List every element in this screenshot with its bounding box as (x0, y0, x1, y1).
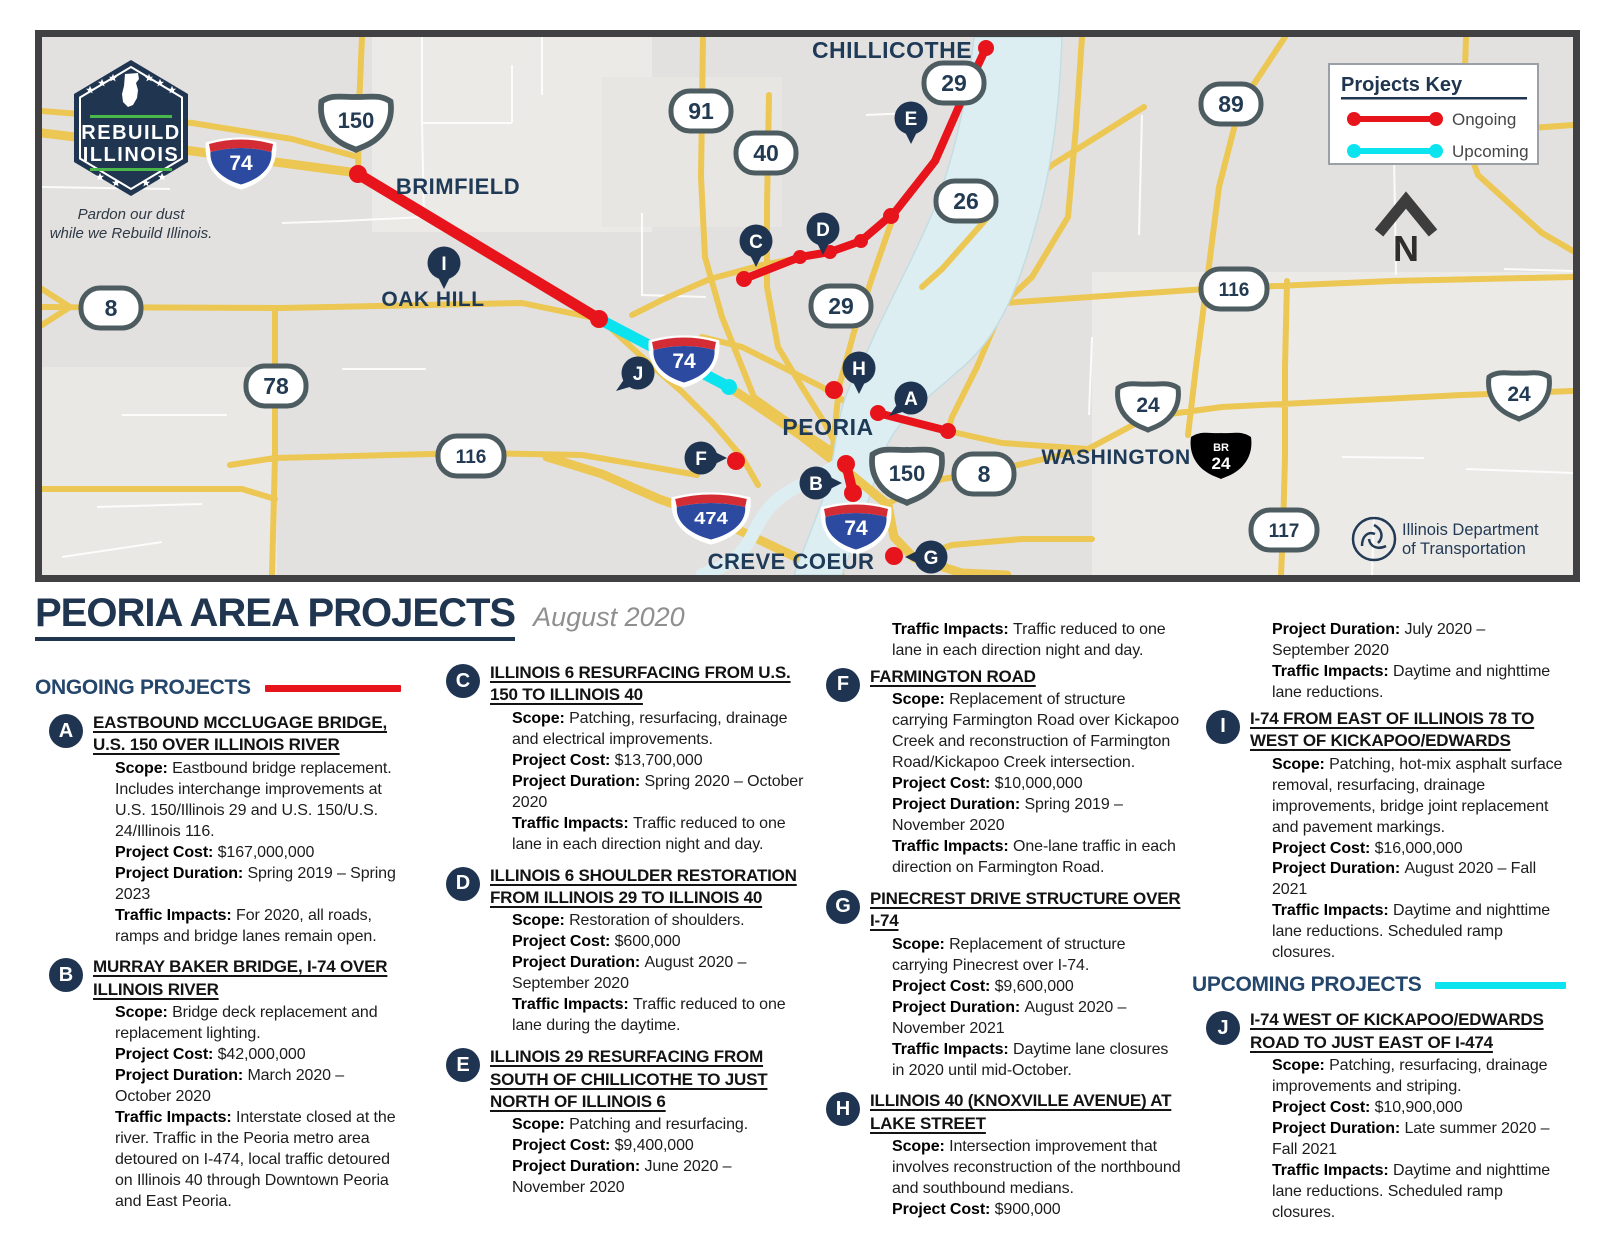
project-detail-scope: Scope: Eastbound bridge replacement. Inc… (115, 759, 401, 843)
svg-text:REBUILD: REBUILD (81, 122, 180, 144)
shield-il-116-west: 116 (438, 436, 504, 476)
svg-text:G: G (924, 548, 939, 569)
ongoing-dot-h (825, 381, 843, 399)
svg-text:I: I (441, 254, 446, 275)
rebuild-illinois-logo: REBUILD ILLINOIS Pardon our dust while w… (50, 60, 213, 242)
project-detail-cost: Project Cost: $16,000,000 (1272, 839, 1566, 860)
page-title: PEORIA AREA PROJECTS (35, 592, 515, 641)
projects-column-1: ONGOING PROJECTSAEASTBOUND MCCLUGAGE BRI… (35, 676, 401, 1222)
project-detail-impacts: Traffic Impacts: Daytime lane closures i… (892, 1040, 1184, 1082)
map-canvas: 8 78 91 40 29 26 29 8 89 116 116 117 150… (42, 37, 1573, 575)
shield-il-29-south: 29 (811, 286, 871, 326)
svg-text:J: J (633, 364, 644, 385)
svg-text:Upcoming: Upcoming (1452, 142, 1529, 161)
project-marker-e: E (446, 1048, 480, 1082)
project-detail-duration: Project Duration: August 2020 – November… (892, 998, 1184, 1040)
project-detail-scope: Scope: Replacement of structure carrying… (892, 690, 1184, 774)
svg-text:29: 29 (941, 70, 967, 96)
project-detail-cost: Project Cost: $9,600,000 (892, 977, 1184, 998)
svg-text:Projects Key: Projects Key (1341, 74, 1463, 96)
city-label-brimfield: BRIMFIELD (396, 174, 520, 199)
svg-text:74: 74 (844, 517, 868, 540)
project-marker-h: H (826, 1092, 860, 1126)
project-detail-cost: Project Cost: $10,900,000 (1272, 1098, 1566, 1119)
shield-il-8-east: 8 (954, 454, 1014, 494)
shield-i-74-west: 74 (206, 137, 277, 189)
project-detail-duration: Project Duration: Spring 2019 – Spring 2… (115, 864, 401, 906)
project-title: MURRAY BAKER BRIDGE, I-74 OVER ILLINOIS … (93, 956, 401, 1001)
project-detail-duration: Project Duration: July 2020 – September … (1272, 620, 1566, 662)
projects-key: Projects Key Ongoing Upcoming (1329, 64, 1538, 164)
project-title: ILLINOIS 6 RESURFACING FROM U.S. 150 TO … (490, 662, 804, 707)
project-marker-g: G (826, 890, 860, 924)
project-detail-impacts: Traffic Impacts: Traffic reduced to one … (892, 620, 1184, 662)
project-marker-b: B (49, 958, 83, 992)
project-detail-impacts: Traffic Impacts: Daytime and nighttime l… (1272, 1161, 1566, 1224)
svg-text:N: N (1393, 228, 1419, 269)
project-detail-scope: Scope: Restoration of shoulders. (512, 911, 804, 932)
project-marker-c: C (446, 664, 480, 698)
project-detail-impacts: Traffic Impacts: For 2020, all roads, ra… (115, 906, 401, 948)
ongoing-dot-f (727, 452, 745, 470)
project-detail-scope: Scope: Patching, resurfacing, drainage a… (512, 709, 804, 751)
svg-text:B: B (809, 474, 823, 495)
page: 8 78 91 40 29 26 29 8 89 116 116 117 150… (0, 0, 1600, 1236)
svg-text:91: 91 (688, 98, 714, 124)
project-detail-impacts: Traffic Impacts: Interstate closed at th… (115, 1108, 401, 1213)
upcoming-line-endpoint (721, 379, 737, 395)
shield-il-29-north: 29 (924, 63, 984, 103)
project-detail-duration: Project Duration: Spring 2019 – November… (892, 795, 1184, 837)
marker-pin-e: E (895, 102, 928, 145)
project-detail-cost: Project Cost: $13,700,000 (512, 751, 804, 772)
svg-text:8: 8 (978, 461, 991, 487)
project-marker-d: D (446, 867, 480, 901)
project-title: I-74 WEST OF KICKAPOO/EDWARDS ROAD TO JU… (1250, 1009, 1566, 1054)
svg-text:C: C (749, 232, 763, 253)
svg-text:24: 24 (1212, 454, 1231, 473)
svg-text:H: H (852, 359, 866, 380)
project-entry: JI-74 WEST OF KICKAPOO/EDWARDS ROAD TO J… (1192, 1009, 1566, 1224)
project-detail-duration: Project Duration: March 2020 – October 2… (115, 1066, 401, 1108)
ongoing-dot-g (885, 547, 903, 565)
project-detail-duration: Project Duration: June 2020 – November 2… (512, 1157, 804, 1199)
shield-il-91: 91 (671, 91, 731, 131)
project-detail-impacts: Traffic Impacts: Daytime and nighttime l… (1272, 662, 1566, 704)
project-marker-j: J (1206, 1011, 1240, 1045)
project-title: ILLINOIS 6 SHOULDER RESTORATION FROM ILL… (490, 865, 804, 910)
svg-text:BR: BR (1213, 442, 1229, 454)
project-detail-cost: Project Cost: $42,000,000 (115, 1045, 401, 1066)
city-label-chillicothe: CHILLICOTHE (812, 37, 972, 63)
section-label: UPCOMING PROJECTS (1192, 973, 1421, 997)
city-label-washington: WASHINGTON (1041, 446, 1190, 469)
project-entry: HILLINOIS 40 (KNOXVILLE AVENUE) AT LAKE … (812, 1090, 1184, 1221)
svg-text:29: 29 (828, 293, 854, 319)
project-marker-f: F (826, 668, 860, 702)
marker-pin-f: F (685, 442, 728, 475)
project-entry: AEASTBOUND MCCLUGAGE BRIDGE, U.S. 150 OV… (35, 712, 401, 947)
svg-text:F: F (695, 449, 707, 470)
shield-il-26: 26 (936, 181, 996, 221)
svg-text:40: 40 (753, 140, 779, 166)
svg-text:116: 116 (1219, 280, 1250, 301)
svg-text:Ongoing: Ongoing (1452, 110, 1516, 129)
svg-text:of Transportation: of Transportation (1402, 540, 1526, 558)
project-detail-scope: Scope: Replacement of structure carrying… (892, 935, 1184, 977)
svg-text:D: D (816, 220, 830, 241)
project-detail-scope: Scope: Patching, hot-mix asphalt surface… (1272, 755, 1566, 839)
svg-text:74: 74 (672, 350, 696, 373)
svg-text:150: 150 (889, 461, 925, 486)
project-continuation: Traffic Impacts: Traffic reduced to one … (812, 620, 1184, 662)
header-date: August 2020 (533, 602, 685, 633)
shield-il-8: 8 (81, 288, 141, 328)
section-heading-upcoming: UPCOMING PROJECTS (1192, 973, 1566, 997)
svg-text:78: 78 (263, 373, 289, 399)
project-detail-scope: Scope: Intersection improvement that inv… (892, 1137, 1184, 1200)
section-color-bar (1435, 982, 1566, 989)
projects-column-3: Traffic Impacts: Traffic reduced to one … (812, 620, 1184, 1230)
svg-text:89: 89 (1218, 91, 1244, 117)
city-label-creve-coeur: CREVE COEUR (708, 549, 875, 574)
svg-text:117: 117 (1269, 521, 1300, 542)
svg-text:Pardon our dust: Pardon our dust (78, 206, 186, 223)
project-detail-duration: Project Duration: Late summer 2020 – Fal… (1272, 1119, 1566, 1161)
project-detail-impacts: Traffic Impacts: Traffic reduced to one … (512, 814, 804, 856)
project-detail-duration: Project Duration: Spring 2020 – October … (512, 772, 804, 814)
project-detail-duration: Project Duration: August 2020 – Fall 202… (1272, 859, 1566, 901)
project-entry: BMURRAY BAKER BRIDGE, I-74 OVER ILLINOIS… (35, 956, 401, 1212)
project-detail-scope: Scope: Patching, resurfacing, drainage i… (1272, 1056, 1566, 1098)
svg-text:116: 116 (456, 447, 487, 468)
project-detail-cost: Project Cost: $9,400,000 (512, 1136, 804, 1157)
project-entry: CILLINOIS 6 RESURFACING FROM U.S. 150 TO… (432, 662, 804, 856)
project-entry: FFARMINGTON ROADScope: Replacement of st… (812, 666, 1184, 879)
marker-pin-j: J (616, 357, 655, 392)
svg-text:24: 24 (1136, 394, 1160, 417)
page-header: PEORIA AREA PROJECTS August 2020 (35, 592, 685, 641)
project-title: ILLINOIS 29 RESURFACING FROM SOUTH OF CH… (490, 1046, 804, 1113)
svg-text:74: 74 (229, 152, 253, 175)
project-entry: II-74 FROM EAST OF ILLINOIS 78 TO WEST O… (1192, 708, 1566, 964)
project-detail-cost: Project Cost: $167,000,000 (115, 843, 401, 864)
section-heading-ongoing: ONGOING PROJECTS (35, 676, 401, 700)
project-detail-cost: Project Cost: $10,000,000 (892, 774, 1184, 795)
shield-il-78: 78 (246, 366, 306, 406)
project-map: 8 78 91 40 29 26 29 8 89 116 116 117 150… (35, 30, 1580, 582)
project-marker-i: I (1206, 710, 1240, 744)
project-detail-cost: Project Cost: $900,000 (892, 1200, 1184, 1221)
north-arrow-icon: N (1379, 200, 1433, 269)
svg-text:8: 8 (105, 295, 118, 321)
project-detail-cost: Project Cost: $600,000 (512, 932, 804, 953)
svg-text:24: 24 (1507, 383, 1531, 406)
svg-text:474: 474 (694, 509, 728, 529)
project-title: PINECREST DRIVE STRUCTURE OVER I-74 (870, 888, 1184, 933)
city-label-peoria: PEORIA (782, 414, 873, 440)
project-detail-duration: Project Duration: August 2020 – Septembe… (512, 953, 804, 995)
project-title: EASTBOUND MCCLUGAGE BRIDGE, U.S. 150 OVE… (93, 712, 401, 757)
svg-text:A: A (904, 389, 918, 410)
projects-column-4: Project Duration: July 2020 – September … (1192, 620, 1566, 1233)
svg-text:26: 26 (953, 188, 979, 214)
project-continuation: Project Duration: July 2020 – September … (1192, 620, 1566, 704)
project-detail-impacts: Traffic Impacts: Traffic reduced to one … (512, 995, 804, 1037)
project-detail-scope: Scope: Patching and resurfacing. (512, 1115, 804, 1136)
project-title: FARMINGTON ROAD (870, 666, 1184, 688)
shield-il-117: 117 (1251, 510, 1317, 550)
section-label: ONGOING PROJECTS (35, 676, 251, 700)
project-entry: EILLINOIS 29 RESURFACING FROM SOUTH OF C… (432, 1046, 804, 1199)
project-title: ILLINOIS 40 (KNOXVILLE AVENUE) AT LAKE S… (870, 1090, 1184, 1135)
project-entry: GPINECREST DRIVE STRUCTURE OVER I-74Scop… (812, 888, 1184, 1082)
project-detail-impacts: Traffic Impacts: Daytime and nighttime l… (1272, 901, 1566, 964)
projects-column-2: CILLINOIS 6 RESURFACING FROM U.S. 150 TO… (432, 662, 804, 1208)
svg-text:Illinois Department: Illinois Department (1402, 521, 1539, 539)
marker-pin-g: G (905, 541, 948, 574)
shield-il-89: 89 (1201, 84, 1261, 124)
shield-il-40: 40 (736, 133, 796, 173)
svg-text:ILLINOIS: ILLINOIS (83, 144, 179, 166)
project-entry: DILLINOIS 6 SHOULDER RESTORATION FROM IL… (432, 865, 804, 1038)
svg-text:150: 150 (338, 108, 374, 133)
shield-il-116-east: 116 (1201, 269, 1267, 309)
svg-text:while we Rebuild Illinois.: while we Rebuild Illinois. (50, 225, 213, 242)
project-marker-a: A (49, 714, 83, 748)
project-detail-impacts: Traffic Impacts: One-lane traffic in eac… (892, 837, 1184, 879)
city-label-oak-hill: OAK HILL (381, 288, 484, 311)
project-title: I-74 FROM EAST OF ILLINOIS 78 TO WEST OF… (1250, 708, 1566, 753)
section-color-bar (265, 685, 401, 692)
marker-pin-i: I (428, 247, 461, 290)
project-detail-scope: Scope: Bridge deck replacement and repla… (115, 1003, 401, 1045)
svg-text:E: E (905, 109, 918, 130)
shield-i-474: 474 (671, 492, 750, 544)
